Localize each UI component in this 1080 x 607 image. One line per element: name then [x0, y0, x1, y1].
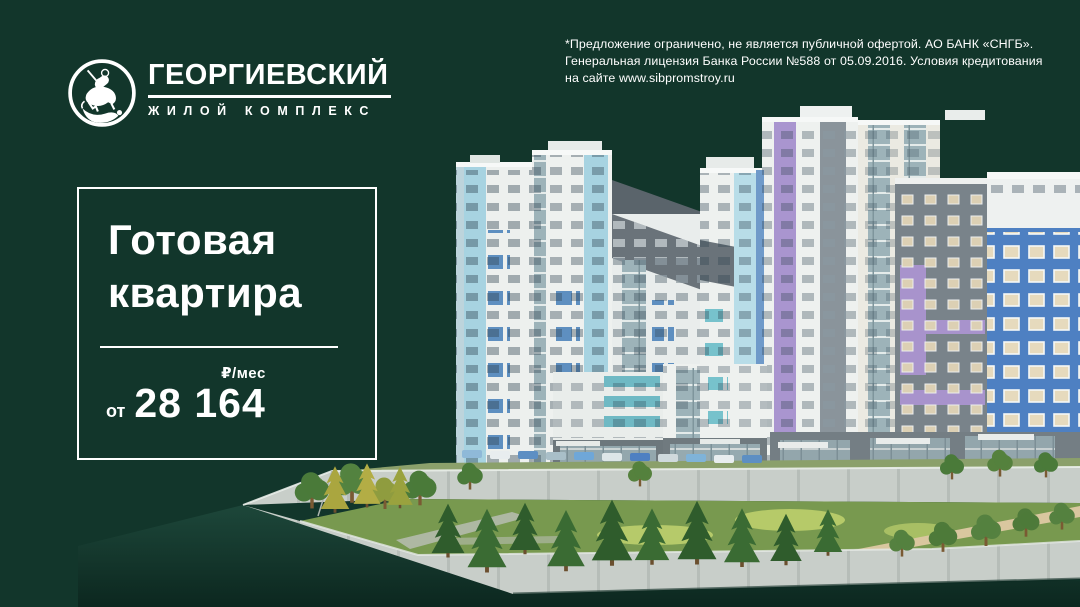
- offer-title: Готовая квартира: [108, 213, 375, 319]
- logo-title: ГЕОРГИЕВСКИЙ: [148, 61, 394, 90]
- offer-divider: [100, 346, 338, 348]
- price-value: 28 164: [134, 383, 265, 424]
- offer-title-line-1: Готовая: [108, 213, 375, 266]
- price-block: ₽/мес от 28 164: [106, 364, 266, 424]
- offer-title-line-2: квартира: [108, 266, 375, 319]
- from-label: от: [106, 401, 125, 422]
- disclaimer-line-2: Генеральная лицензия Банка России №588 о…: [565, 53, 1043, 70]
- disclaimer-line-1: *Предложение ограничено, не является пуб…: [565, 36, 1043, 53]
- logo: ГЕОРГИЕВСКИЙ ЖИЛОЙ КОМПЛЕКС: [66, 57, 394, 129]
- legal-disclaimer: *Предложение ограничено, не является пуб…: [565, 36, 1043, 87]
- logo-divider: [148, 95, 391, 98]
- disclaimer-line-3: на сайте www.sibpromstroy.ru: [565, 70, 1043, 87]
- offer-box: Готовая квартира ₽/мес от 28 164: [77, 187, 377, 460]
- st-george-emblem-icon: [66, 57, 138, 129]
- logo-subtitle: ЖИЛОЙ КОМПЛЕКС: [148, 104, 394, 118]
- building-towers: [456, 106, 1080, 485]
- promo-banner: ГЕОРГИЕВСКИЙ ЖИЛОЙ КОМПЛЕКС *Предложение…: [0, 0, 1080, 607]
